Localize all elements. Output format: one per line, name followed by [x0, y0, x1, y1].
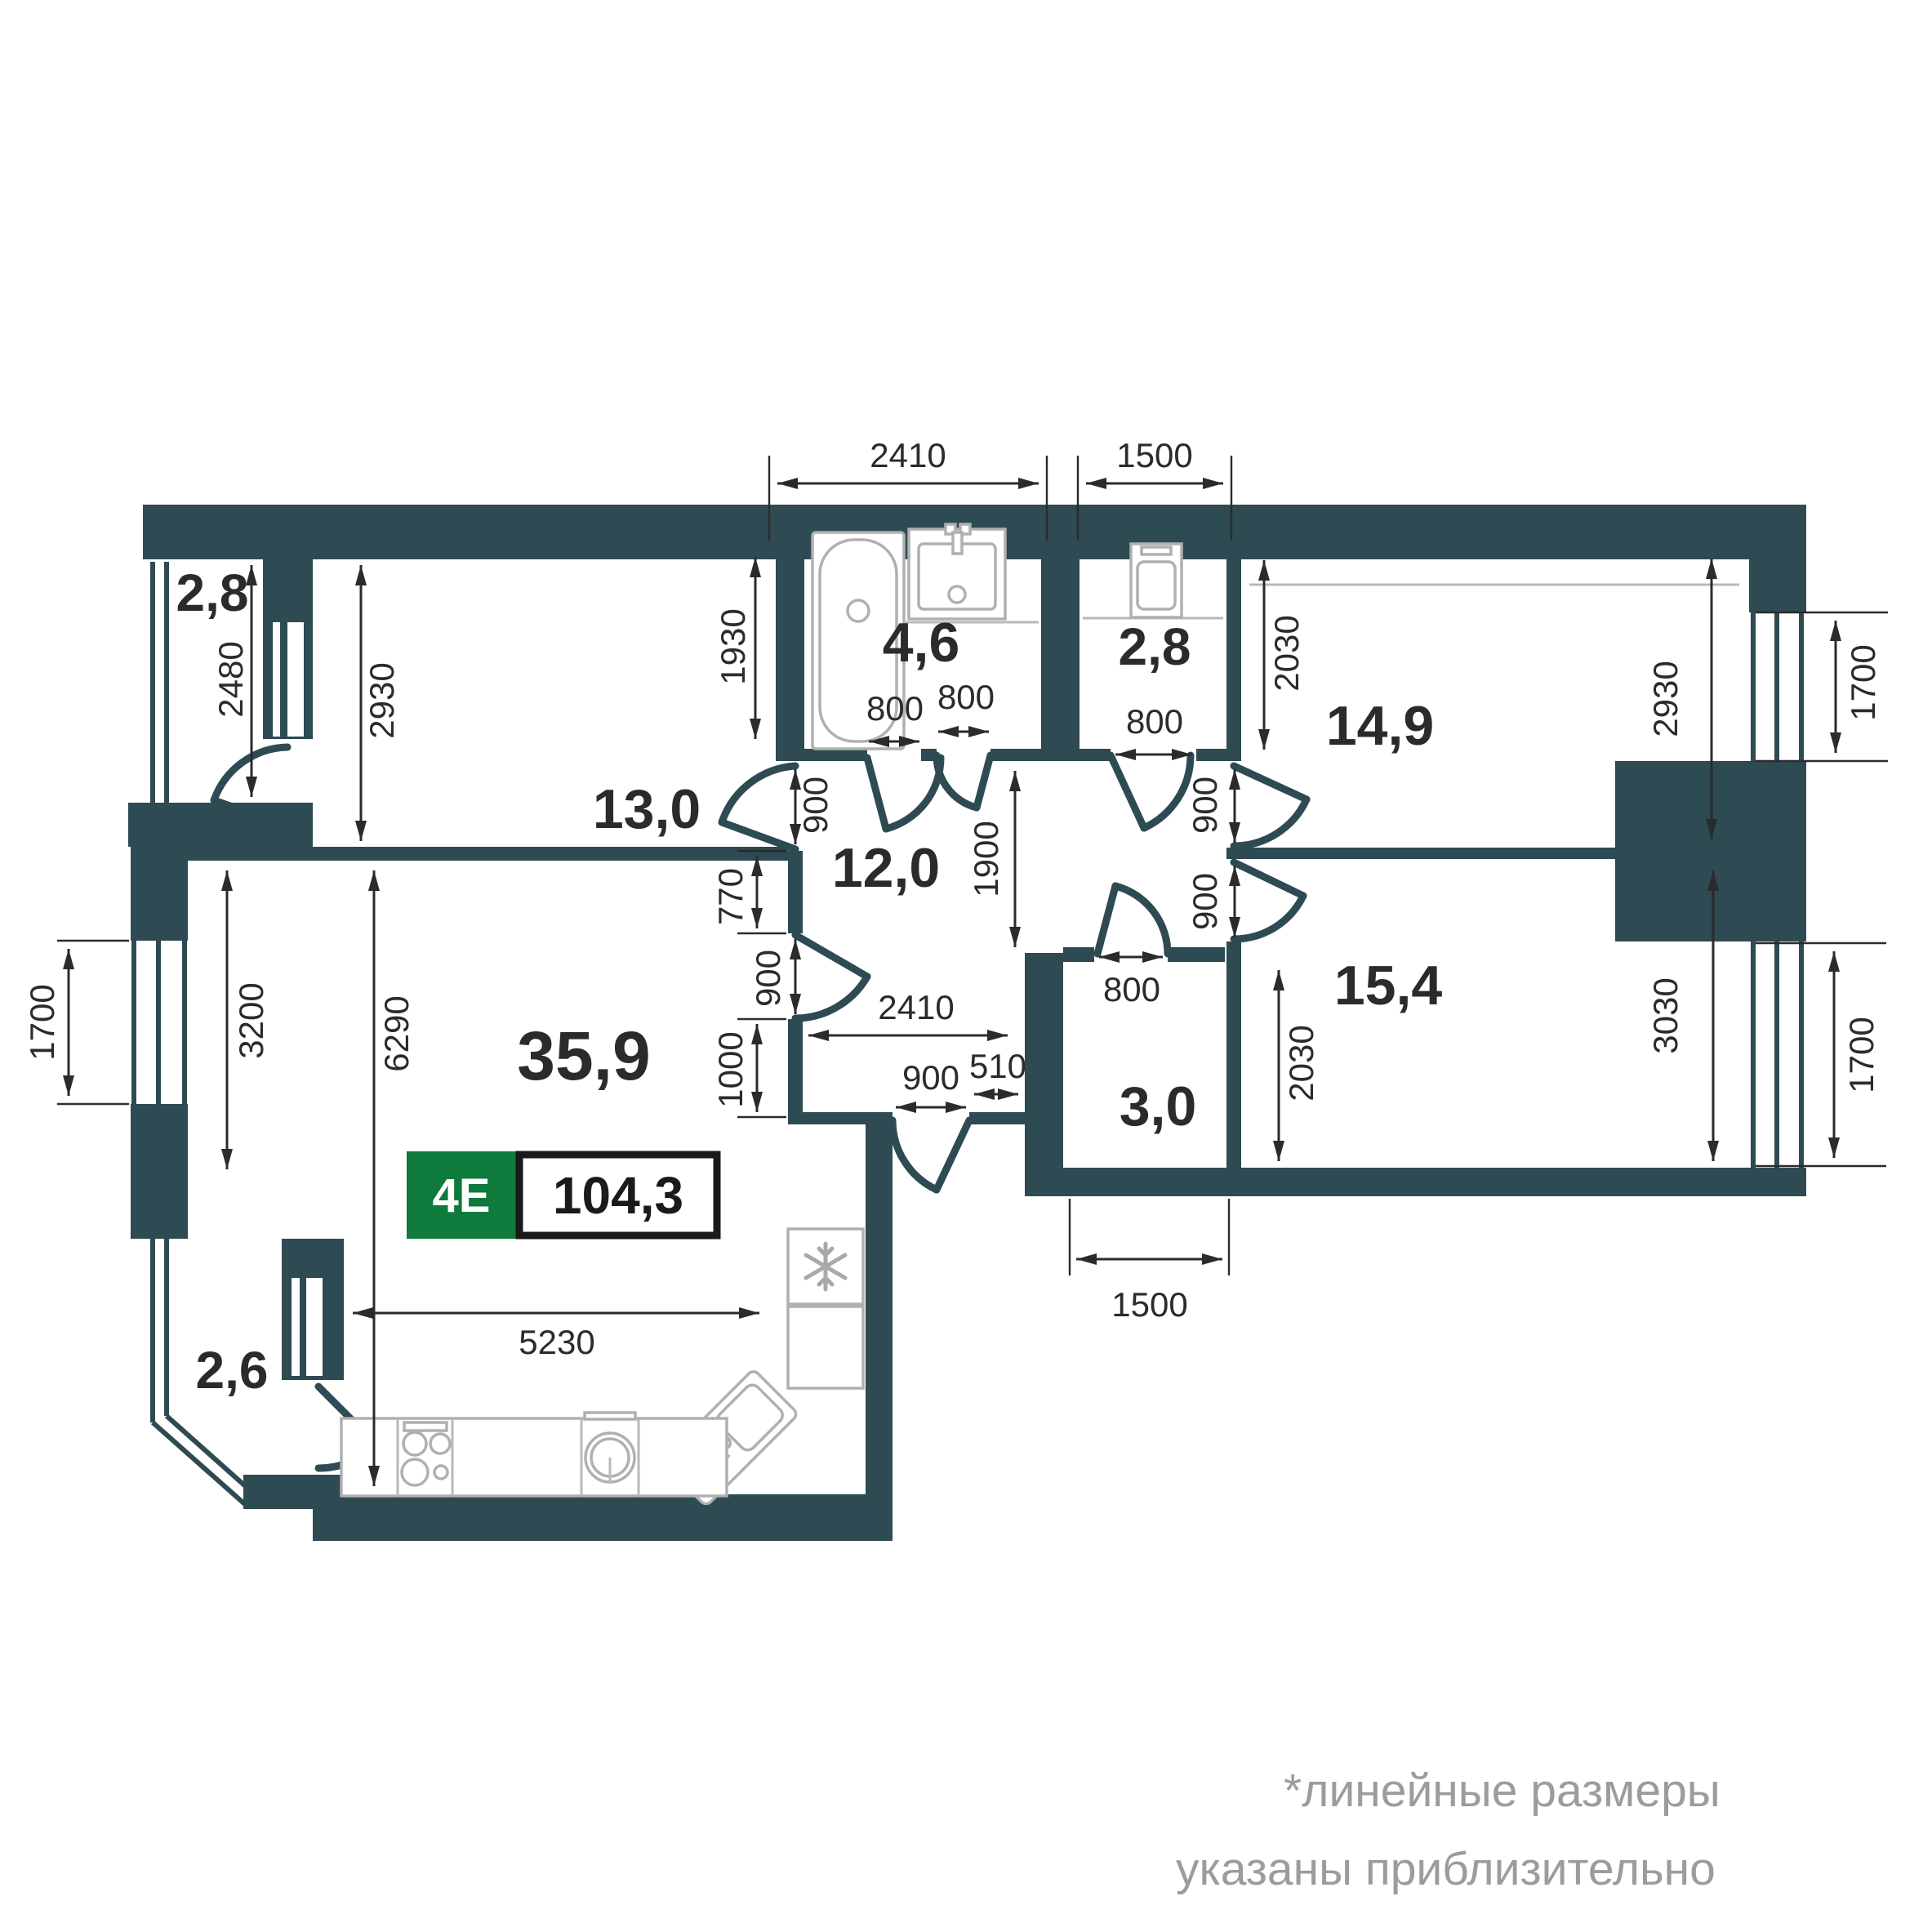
- dim-bedroom2-door-900: 900: [1186, 866, 1235, 937]
- dim-label-living-6290: 6290: [377, 995, 416, 1071]
- room-label-balcony-bottom: 2,6: [196, 1341, 269, 1400]
- dim-label-top-2410: 2410: [870, 436, 946, 474]
- door-living: [795, 935, 867, 1018]
- dim-label-1900: 1900: [967, 821, 1005, 897]
- dim-label-entry-door-900: 900: [902, 1058, 959, 1097]
- bedroom1-window: [1753, 612, 1801, 761]
- dim-label-left-1700: 1700: [23, 984, 61, 1060]
- apartment-badge: 4E 104,3: [407, 1151, 717, 1239]
- dim-label-770: 770: [711, 868, 750, 925]
- dim-label-hall-2930: 2930: [363, 662, 401, 738]
- dim-510: 510: [969, 1047, 1026, 1094]
- living-window: [134, 941, 185, 1104]
- door-storage: [1097, 886, 1168, 954]
- balcony-top-glazing: [153, 562, 167, 803]
- dim-label-bedroom1-door-900: 900: [1186, 777, 1224, 834]
- door-bedroom1: [1234, 766, 1307, 846]
- kitchen-counter: [341, 1418, 727, 1496]
- fridge-icon: [788, 1229, 863, 1304]
- dim-bedroom1-2030: 2030: [1264, 560, 1306, 750]
- room-label-living: 35,9: [517, 1017, 651, 1094]
- room-label-corridor: 12,0: [832, 837, 940, 899]
- dim-hall-door-900: 900: [795, 769, 835, 844]
- dim-bedroom2-2030: 2030: [1279, 970, 1320, 1161]
- dim-label-bedroom1-2930: 2930: [1646, 661, 1685, 737]
- dim-1000: 1000: [711, 1019, 786, 1117]
- dim-label-living-door-900: 900: [749, 950, 787, 1007]
- dim-label-laundry-door-800: 800: [1126, 702, 1183, 741]
- dim-label-2480: 2480: [211, 641, 250, 717]
- dim-label-bedroom2-door-900: 900: [1186, 873, 1224, 930]
- dim-770: 770: [711, 851, 786, 933]
- kitchen-counter-column: [788, 1307, 863, 1388]
- dim-hall-2930: 2930: [361, 565, 401, 841]
- door-vestibule: [937, 755, 990, 808]
- door-hall: [722, 766, 795, 849]
- dim-label-bedroom1-2030: 2030: [1267, 615, 1306, 691]
- dim-label-bath-door2-800: 800: [937, 678, 995, 716]
- dim-label-hall-door-900: 900: [796, 777, 835, 834]
- door-bathroom: [867, 758, 941, 829]
- dim-label-510: 510: [969, 1047, 1026, 1085]
- dim-label-top-1500: 1500: [1116, 436, 1192, 474]
- dim-laundry-door-800: 800: [1115, 702, 1192, 755]
- dim-label-living-3200: 3200: [232, 982, 270, 1058]
- room-label-balcony-top: 2,8: [176, 563, 249, 622]
- room-label-hall: 13,0: [593, 778, 701, 840]
- room-label-bedroom2: 15,4: [1334, 955, 1443, 1017]
- dim-label-storage-1500: 1500: [1111, 1285, 1187, 1324]
- door-entry: [893, 1120, 969, 1190]
- dim-bath-door2-800: 800: [937, 678, 995, 732]
- dim-label-bedroom2-3030: 3030: [1646, 977, 1685, 1053]
- dim-label-storage-door-800: 800: [1103, 970, 1160, 1008]
- room-label-bedroom1: 14,9: [1326, 695, 1434, 757]
- dim-bedroom1-door-900: 900: [1186, 769, 1235, 843]
- dim-label-1000: 1000: [711, 1031, 750, 1107]
- dim-label-corridor-2410: 2410: [878, 988, 954, 1026]
- bedroom2-window: [1753, 942, 1801, 1169]
- dim-window-left-1700: 1700: [23, 941, 129, 1104]
- door-bedroom2: [1234, 862, 1303, 939]
- dim-label-bath-door-800: 800: [866, 689, 924, 728]
- room-label-bathroom: 4,6: [883, 612, 960, 674]
- room-label-storage: 3,0: [1120, 1075, 1197, 1137]
- dim-entry-door-900: 900: [896, 1058, 966, 1107]
- dim-living-door-900: 900: [749, 939, 795, 1014]
- floor-plan: 2410 1500 2480 2930 1930 800 800: [0, 0, 1932, 1932]
- dim-label-right-bottom-1700: 1700: [1842, 1017, 1881, 1093]
- dim-kitchen-5230: 5230: [353, 1313, 759, 1361]
- badge-type-label: 4E: [433, 1169, 491, 1222]
- dim-1900: 1900: [967, 771, 1015, 947]
- dim-storage-door-800: 800: [1099, 957, 1163, 1008]
- dim-storage-1500: 1500: [1070, 1199, 1229, 1324]
- dim-living-3200: 3200: [227, 870, 270, 1169]
- dim-label-right-top-1700: 1700: [1844, 644, 1882, 720]
- room-label-laundry: 2,8: [1119, 617, 1191, 676]
- badge-area-label: 104,3: [553, 1166, 683, 1225]
- dim-label-bath-1930: 1930: [714, 608, 752, 684]
- door-laundry: [1111, 755, 1191, 828]
- dim-corridor-2410: 2410: [808, 988, 1008, 1035]
- floor-plan-page: 2410 1500 2480 2930 1930 800 800: [0, 0, 1932, 1932]
- footnote-line2: указаны приблизительно: [1176, 1843, 1716, 1895]
- dim-label-bedroom2-2030: 2030: [1282, 1025, 1320, 1101]
- footnote-line1: *линейные размеры: [1284, 1765, 1721, 1817]
- dim-bath-1930: 1930: [714, 557, 755, 739]
- footnote: *линейные размеры указаны приблизительно: [1176, 1765, 1721, 1895]
- dim-label-kitchen-5230: 5230: [519, 1323, 594, 1361]
